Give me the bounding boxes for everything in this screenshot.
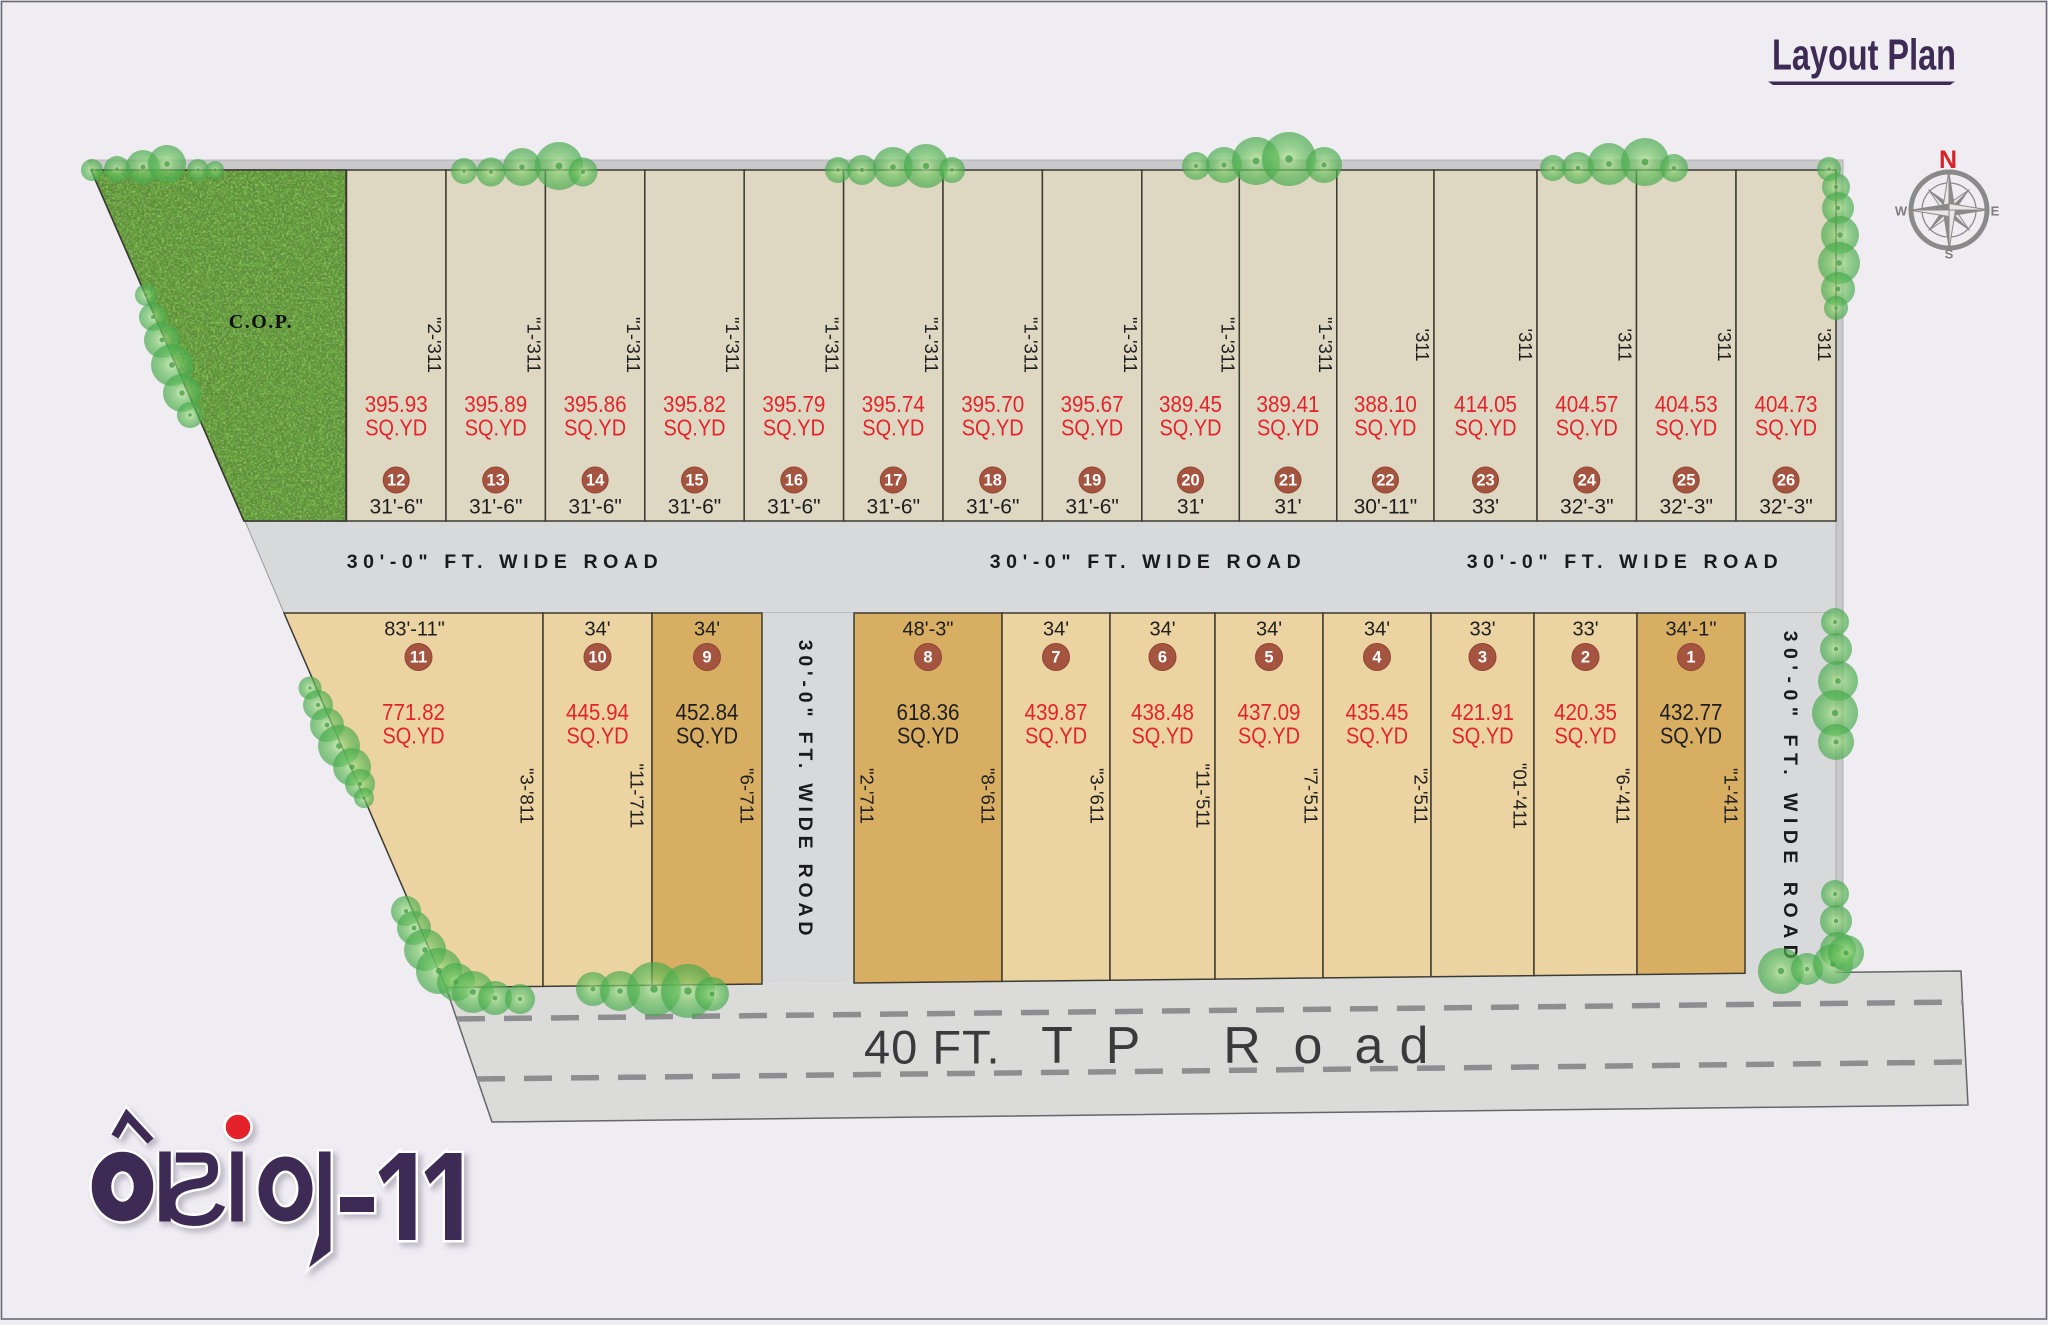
svg-text:d: d [1400,1017,1429,1075]
svg-text:"1-'311: "1-'311 [822,317,843,373]
svg-text:SQ.YD: SQ.YD [465,415,527,441]
svg-text:618.36: 618.36 [897,699,960,725]
svg-text:'311: '311 [1515,328,1536,361]
svg-text:31': 31' [1177,496,1204,519]
svg-text:12: 12 [387,472,405,490]
svg-text:SQ.YD: SQ.YD [1025,723,1087,749]
svg-text:"2-'311: "2-'311 [424,317,445,373]
svg-text:"8-'611: "8-'611 [978,768,999,824]
svg-text:31'-6": 31'-6" [369,496,423,519]
svg-text:SQ.YD: SQ.YD [1455,415,1517,441]
svg-text:"11-'711: "11-'711 [627,764,648,829]
svg-text:34': 34' [1149,619,1175,641]
svg-text:389.45: 389.45 [1159,391,1222,417]
svg-text:"3-'611: "3-'611 [1087,768,1108,824]
svg-text:395.82: 395.82 [663,391,726,417]
svg-text:395.67: 395.67 [1061,391,1124,417]
svg-text:'311: '311 [1615,328,1636,361]
svg-text:SQ.YD: SQ.YD [1555,723,1617,749]
svg-text:34'-1": 34'-1" [1666,619,1717,641]
svg-text:771.82: 771.82 [382,699,445,725]
svg-text:25: 25 [1677,472,1695,490]
svg-text:'311: '311 [1714,328,1735,361]
svg-text:34': 34' [1256,619,1282,641]
svg-text:34': 34' [694,619,720,641]
svg-text:31'-6": 31'-6" [1065,496,1119,519]
svg-text:33': 33' [1469,619,1495,641]
svg-text:395.93: 395.93 [365,391,428,417]
svg-text:437.09: 437.09 [1238,699,1301,725]
svg-text:395.70: 395.70 [961,391,1024,417]
svg-text:"2-'711: "2-'711 [857,768,878,824]
svg-text:30'-0" FT. WIDE ROAD: 30'-0" FT. WIDE ROAD [990,551,1307,573]
svg-text:395.89: 395.89 [464,391,527,417]
svg-text:17: 17 [884,472,902,490]
svg-text:395.74: 395.74 [862,391,925,417]
svg-text:452.84: 452.84 [676,699,739,725]
svg-text:S: S [1945,247,1954,262]
svg-text:404.53: 404.53 [1655,391,1718,417]
svg-text:SQ.YD: SQ.YD [564,415,626,441]
svg-text:26: 26 [1777,472,1795,490]
svg-text:"7-'511: "7-'511 [1301,768,1322,824]
svg-text:o: o [1294,1017,1323,1075]
svg-text:"1-'311: "1-'311 [722,317,743,373]
svg-text:SQ.YD: SQ.YD [763,415,825,441]
svg-text:31': 31' [1274,496,1301,519]
svg-text:"1-'311: "1-'311 [523,317,544,373]
svg-text:a: a [1355,1017,1384,1075]
svg-text:P: P [1106,1017,1141,1075]
svg-text:SQ.YD: SQ.YD [962,415,1024,441]
svg-text:4: 4 [1372,649,1382,667]
svg-text:18: 18 [984,472,1002,490]
svg-text:SQ.YD: SQ.YD [664,415,726,441]
svg-text:"1-'311: "1-'311 [921,317,942,373]
svg-text:R: R [1223,1017,1261,1075]
svg-text:SQ.YD: SQ.YD [1257,415,1319,441]
svg-text:395.86: 395.86 [564,391,627,417]
svg-text:30'-0" FT. WIDE ROAD: 30'-0" FT. WIDE ROAD [347,551,664,573]
svg-text:SQ.YD: SQ.YD [365,415,427,441]
svg-text:16: 16 [785,472,803,490]
svg-text:32'-3": 32'-3" [1560,496,1614,519]
svg-text:83'-11": 83'-11" [384,619,445,641]
svg-text:22: 22 [1376,472,1394,490]
svg-text:40 FT.: 40 FT. [864,1021,1001,1074]
svg-text:E: E [1991,204,2000,219]
svg-text:"1-'411: "1-'411 [1721,768,1742,824]
svg-text:"6-'411: "6-'411 [1613,768,1634,824]
svg-text:404.73: 404.73 [1755,391,1818,417]
svg-text:32'-3": 32'-3" [1759,496,1813,519]
svg-text:31'-6": 31'-6" [469,496,523,519]
svg-text:48'-3": 48'-3" [903,619,954,641]
svg-text:SQ.YD: SQ.YD [1061,415,1123,441]
svg-text:1: 1 [1686,649,1695,667]
svg-text:23: 23 [1476,472,1494,490]
svg-text:"11-'511: "11-'511 [1193,764,1214,829]
svg-text:388.10: 388.10 [1354,391,1417,417]
svg-text:20: 20 [1181,472,1199,490]
svg-text:15: 15 [685,472,703,490]
svg-text:"1-'311: "1-'311 [1217,317,1238,373]
svg-text:SQ.YD: SQ.YD [1346,723,1408,749]
svg-text:SQ.YD: SQ.YD [1452,723,1514,749]
svg-text:SQ.YD: SQ.YD [1354,415,1416,441]
svg-text:"2-'511: "2-'511 [1411,768,1432,824]
svg-text:"1-'311: "1-'311 [1020,317,1041,373]
svg-text:24: 24 [1578,472,1597,490]
svg-text:11: 11 [410,649,427,667]
svg-text:T: T [1041,1017,1073,1075]
svg-text:33': 33' [1572,619,1598,641]
svg-text:Layout Plan: Layout Plan [1772,31,1956,80]
svg-text:6: 6 [1158,649,1167,667]
svg-text:SQ.YD: SQ.YD [676,723,738,749]
svg-text:34': 34' [1364,619,1390,641]
svg-text:SQ.YD: SQ.YD [1238,723,1300,749]
svg-text:21: 21 [1279,472,1297,490]
svg-text:SQ.YD: SQ.YD [862,415,924,441]
svg-text:10: 10 [588,649,606,667]
svg-text:30'-11": 30'-11" [1354,496,1418,519]
svg-text:14: 14 [586,472,605,490]
svg-text:SQ.YD: SQ.YD [897,723,959,749]
svg-text:SQ.YD: SQ.YD [1160,415,1222,441]
svg-text:N: N [1939,146,1957,174]
svg-text:34': 34' [584,619,610,641]
svg-text:13: 13 [487,472,505,490]
svg-text:439.87: 439.87 [1025,699,1088,725]
svg-text:SQ.YD: SQ.YD [567,723,629,749]
svg-text:31'-6": 31'-6" [966,496,1020,519]
svg-text:31'-6": 31'-6" [767,496,821,519]
svg-text:19: 19 [1083,472,1101,490]
svg-text:5: 5 [1264,649,1273,667]
svg-text:"3-'811: "3-'811 [517,768,538,824]
svg-text:420.35: 420.35 [1554,699,1617,725]
svg-text:30'-0" FT. WIDE ROAD: 30'-0" FT. WIDE ROAD [1467,551,1784,573]
svg-text:34': 34' [1043,619,1069,641]
svg-text:414.05: 414.05 [1454,391,1517,417]
svg-text:"1-'311: "1-'311 [1315,317,1336,373]
svg-text:SQ.YD: SQ.YD [1660,723,1722,749]
svg-text:C.O.P.: C.O.P. [229,311,293,333]
svg-text:"1-'311: "1-'311 [623,317,644,373]
svg-text:31'-6": 31'-6" [568,496,622,519]
svg-text:395.79: 395.79 [762,391,825,417]
svg-text:"6-'711: "6-'711 [737,768,758,824]
svg-text:404.57: 404.57 [1555,391,1618,417]
svg-text:SQ.YD: SQ.YD [1556,415,1618,441]
svg-text:432.77: 432.77 [1660,699,1723,725]
svg-text:SQ.YD: SQ.YD [1132,723,1194,749]
svg-text:'311: '311 [1412,328,1433,361]
svg-text:SQ.YD: SQ.YD [1655,415,1717,441]
svg-text:SQ.YD: SQ.YD [383,723,445,749]
svg-text:438.48: 438.48 [1131,699,1194,725]
svg-text:SQ.YD: SQ.YD [1755,415,1817,441]
svg-text:'311: '311 [1814,328,1835,361]
svg-text:33': 33' [1472,496,1499,519]
svg-text:435.45: 435.45 [1346,699,1409,725]
svg-text:W: W [1895,204,1908,219]
svg-text:9: 9 [702,649,711,667]
svg-text:"1-'311: "1-'311 [1120,317,1141,373]
svg-text:"01-'411: "01-'411 [1510,763,1531,829]
svg-text:30'-0" FT. WIDE ROAD: 30'-0" FT. WIDE ROAD [1779,631,1801,966]
svg-text:31'-6": 31'-6" [867,496,921,519]
svg-text:7: 7 [1051,649,1060,667]
svg-text:8: 8 [923,649,932,667]
svg-text:32'-3": 32'-3" [1659,496,1713,519]
svg-text:445.94: 445.94 [566,699,629,725]
svg-text:389.41: 389.41 [1257,391,1320,417]
svg-text:421.91: 421.91 [1451,699,1514,725]
svg-text:31'-6": 31'-6" [668,496,722,519]
svg-text:3: 3 [1478,649,1487,667]
svg-text:2: 2 [1581,649,1590,667]
svg-text:30'-0" FT. WIDE ROAD: 30'-0" FT. WIDE ROAD [794,640,816,941]
